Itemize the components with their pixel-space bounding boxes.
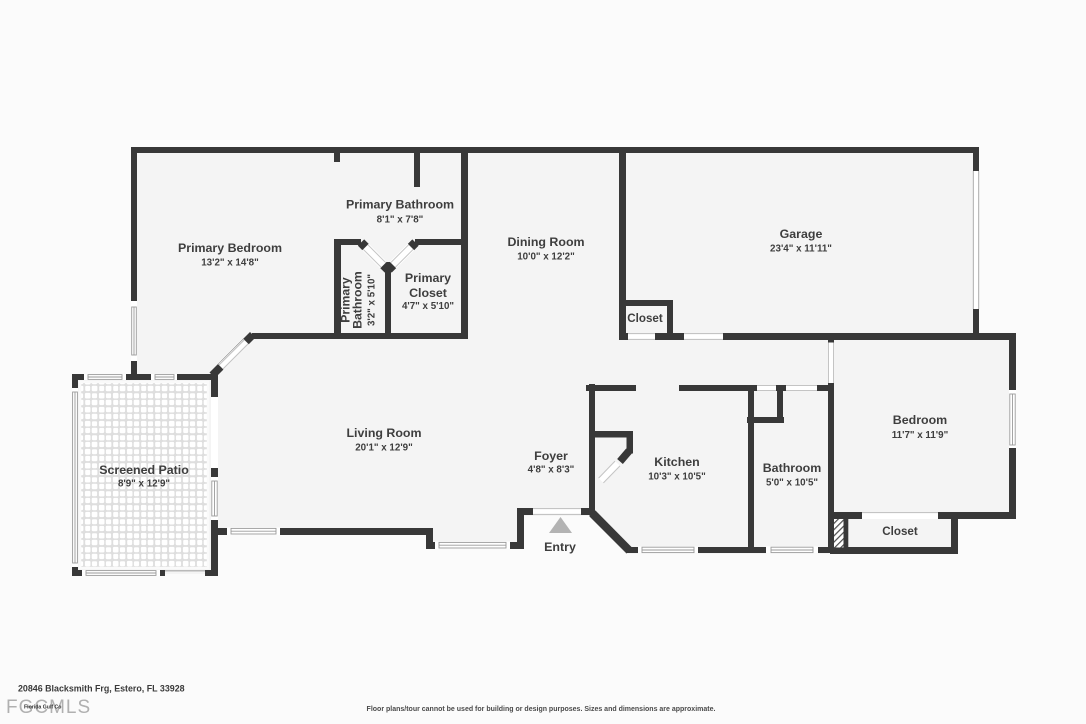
svg-text:5'0" x 10'5": 5'0" x 10'5" — [766, 478, 818, 489]
svg-text:3'2" x 5'10": 3'2" x 5'10" — [367, 274, 378, 326]
svg-text:11'7" x 11'9": 11'7" x 11'9" — [892, 430, 948, 441]
svg-text:4'7" x 5'10": 4'7" x 5'10" — [402, 301, 454, 312]
svg-text:10'0" x 12'2": 10'0" x 12'2" — [517, 252, 575, 263]
svg-text:13'2" x 14'8": 13'2" x 14'8" — [201, 258, 259, 269]
svg-text:Entry: Entry — [544, 540, 576, 554]
svg-text:Closet: Closet — [627, 312, 663, 325]
svg-text:Florida Gulf Co: Florida Gulf Co — [24, 705, 61, 711]
svg-text:Primary Bedroom: Primary Bedroom — [178, 241, 282, 255]
svg-text:Living Room: Living Room — [346, 426, 421, 440]
svg-text:8'1" x 7'8": 8'1" x 7'8" — [377, 215, 424, 226]
svg-text:10'3" x 10'5": 10'3" x 10'5" — [648, 472, 706, 483]
svg-text:Closet: Closet — [409, 286, 447, 300]
svg-text:Bedroom: Bedroom — [893, 413, 947, 427]
svg-text:Primary: Primary — [405, 271, 451, 285]
svg-text:Dining Room: Dining Room — [507, 235, 584, 249]
svg-text:8'9" x 12'9": 8'9" x 12'9" — [118, 479, 170, 490]
svg-text:23'4" x 11'11": 23'4" x 11'11" — [770, 244, 832, 255]
svg-text:20846 Blacksmith Frg, Estero,: 20846 Blacksmith Frg, Estero, FL 33928 — [18, 684, 185, 694]
svg-text:Garage: Garage — [780, 227, 823, 241]
svg-text:4'8" x 8'3": 4'8" x 8'3" — [528, 465, 575, 476]
svg-text:Kitchen: Kitchen — [654, 455, 699, 469]
svg-text:Closet: Closet — [882, 525, 918, 538]
svg-text:Bathroom: Bathroom — [351, 271, 365, 329]
svg-text:20'1" x 12'9": 20'1" x 12'9" — [355, 443, 413, 454]
svg-text:Foyer: Foyer — [534, 449, 568, 463]
svg-text:Bathroom: Bathroom — [763, 461, 822, 475]
svg-text:Primary Bathroom: Primary Bathroom — [346, 198, 454, 212]
svg-text:Floor plans/tour cannot be use: Floor plans/tour cannot be used for buil… — [367, 706, 716, 713]
svg-text:Screened Patio: Screened Patio — [99, 463, 189, 477]
